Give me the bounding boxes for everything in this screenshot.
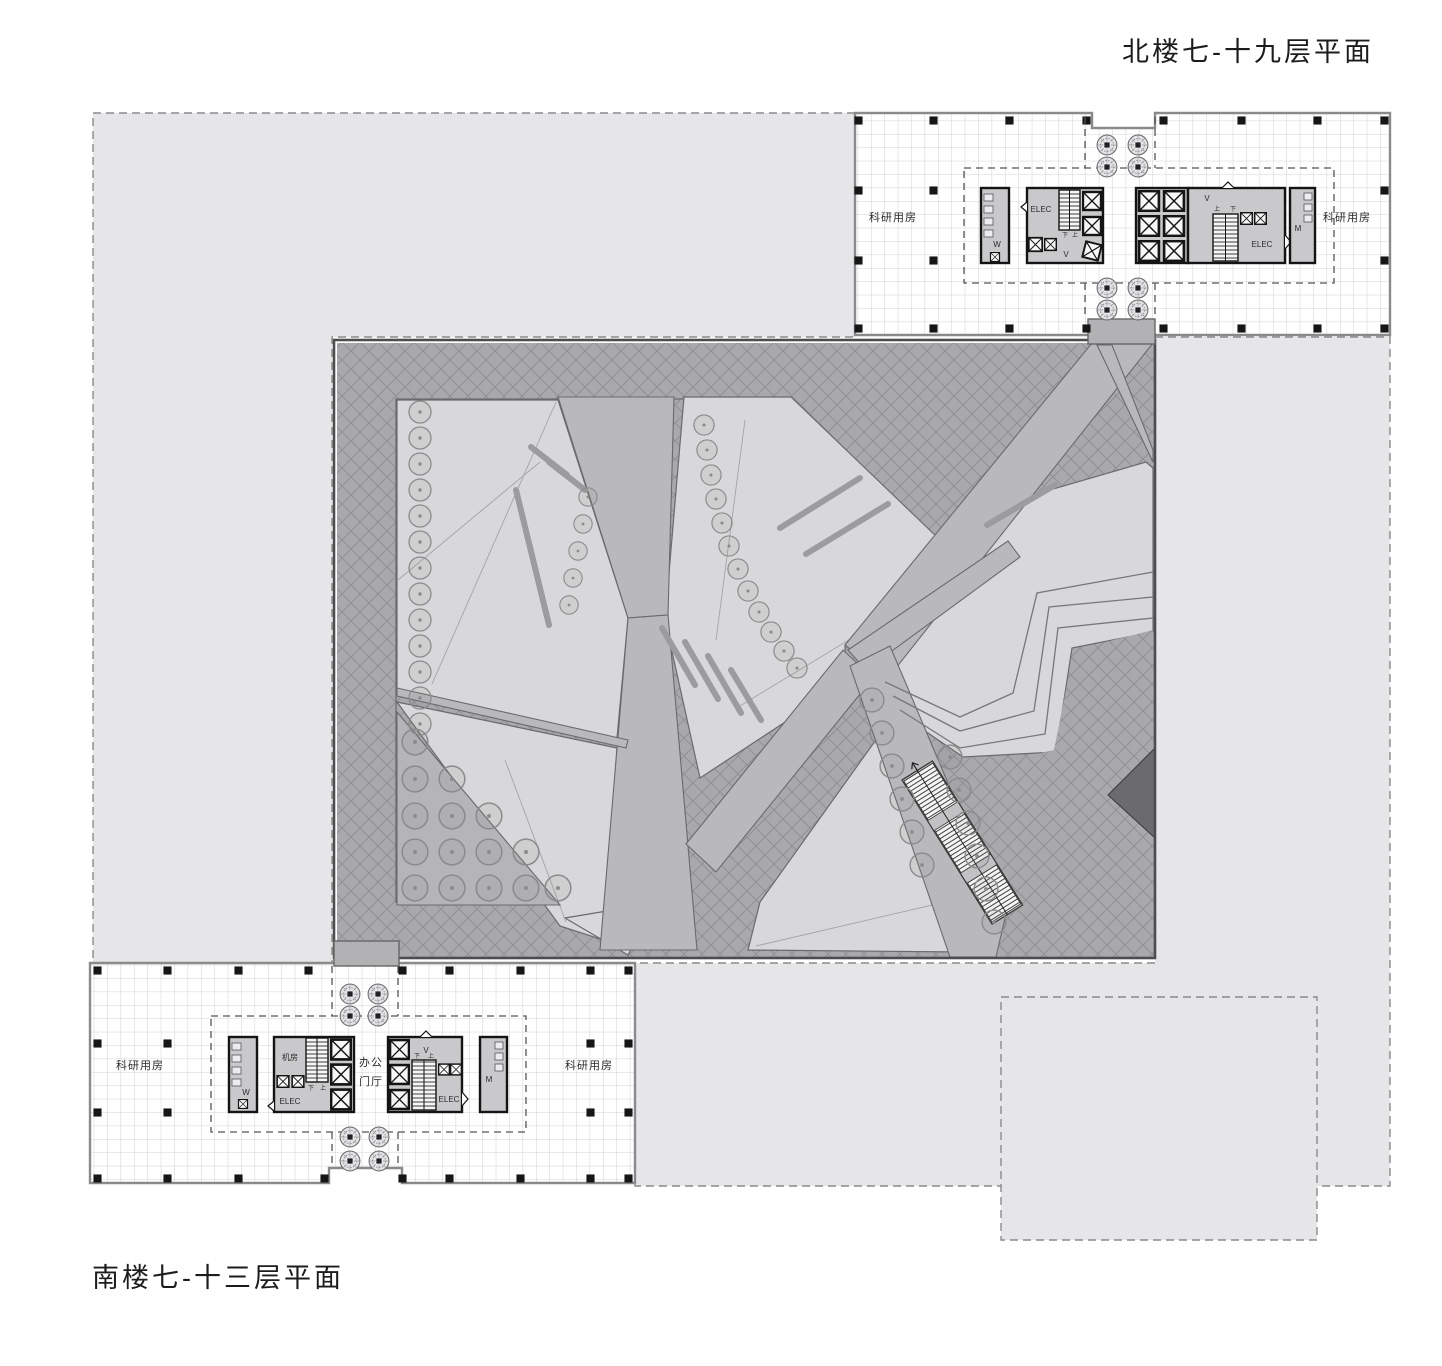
shaft-icon [292,1076,304,1088]
south-building: W 机房 ELEC 下 上 办公 门厅 V [90,941,635,1183]
elec-room-label: ELEC [1252,240,1273,249]
shaft-icon [239,1100,248,1109]
elevator-icon [331,1040,351,1060]
stair-up-label: 上 [428,1052,434,1060]
shaft-icon [439,1064,450,1075]
north-connector [1088,319,1155,344]
south-connector [334,941,399,966]
elevator-icon [390,1040,409,1059]
stair-up-label: 上 [1072,231,1078,239]
elevator-icon [1139,216,1159,236]
elevator-icon [1139,191,1159,211]
north-plan-title: 北楼七-十九层平面 [1122,30,1374,69]
shaft-icon [277,1076,289,1088]
shaft-icon [451,1064,462,1075]
research-room-label: 科研用房 [869,210,917,224]
elevator-icon [1083,192,1101,210]
shaft-icon [1241,213,1253,225]
women-room-label: W [993,240,1001,249]
elevator-icon [331,1065,351,1085]
south-plan-title: 南楼七-十三层平面 [92,1256,344,1295]
floor-plan-sheet: W ELEC V 下 上 [0,0,1442,1366]
site-pad-southeast [1001,997,1317,1240]
elec-room-label: ELEC [280,1097,301,1106]
machine-room-label: 机房 [282,1052,298,1062]
stair-down-label: 下 [1062,232,1068,239]
shaft-icon [1255,213,1267,225]
elevator-icon [1164,191,1184,211]
stair-down-label: 下 [308,1085,314,1092]
south-building-floorplate [90,963,635,1183]
stair-up-label: 上 [1214,205,1220,213]
elevator-icon [390,1065,409,1084]
research-room-label: 科研用房 [1323,210,1371,224]
courtyard [334,340,1155,958]
north-core: W ELEC V 下 上 [981,182,1315,263]
vent-label: V [1204,194,1210,203]
stair-down-label: 下 [1230,206,1236,213]
elevator-icon [1139,241,1159,261]
shaft-icon [1029,238,1043,252]
stair-up-label: 上 [320,1084,326,1092]
elevator-icon [1083,217,1101,235]
plan-drawing: W ELEC V 下 上 [0,0,1442,1366]
men-room-label: M [1295,224,1302,233]
elevator-icon [390,1090,409,1109]
vent-label: V [1063,250,1069,259]
lobby-label-line2: 门厅 [359,1074,383,1088]
shaft-icon [1045,239,1057,251]
shaft-icon [991,253,1000,262]
elec-room-label: ELEC [439,1095,460,1104]
north-building: W ELEC V 下 上 [854,113,1390,344]
stair-down-label: 下 [414,1053,420,1060]
elevator-icon [1164,216,1184,236]
elevator-icon [1164,241,1184,261]
research-room-label: 科研用房 [565,1058,613,1072]
research-room-label: 科研用房 [116,1058,164,1072]
elec-room-label: ELEC [1031,205,1052,214]
elevator-icon [331,1090,351,1110]
lobby-label-line1: 办公 [359,1056,383,1069]
women-room-label: W [242,1088,250,1097]
men-room-label: M [486,1075,493,1084]
shaft-icon [1082,241,1102,261]
